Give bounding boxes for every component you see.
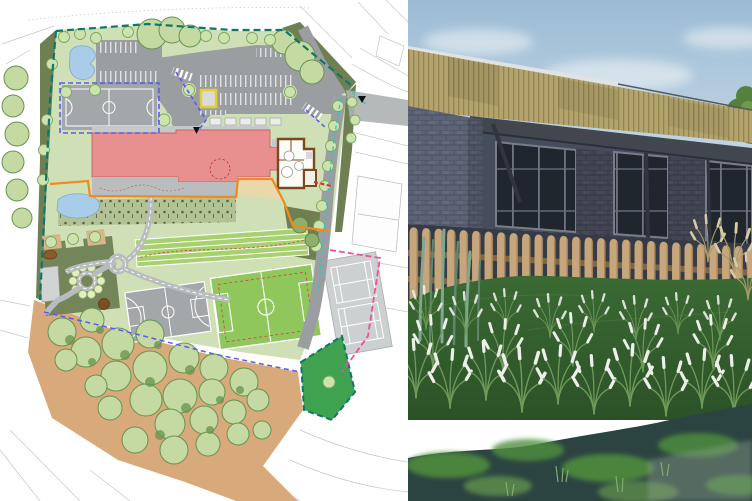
exterior-render xyxy=(408,0,752,501)
render-panel xyxy=(408,0,752,501)
site-plan-panel xyxy=(0,0,408,501)
school-building xyxy=(92,126,286,200)
muga-court xyxy=(62,85,157,130)
parked-cars xyxy=(210,118,281,125)
composite-image xyxy=(0,0,752,501)
cycle-shelter xyxy=(201,90,216,107)
site-plan-drawing xyxy=(0,0,408,501)
